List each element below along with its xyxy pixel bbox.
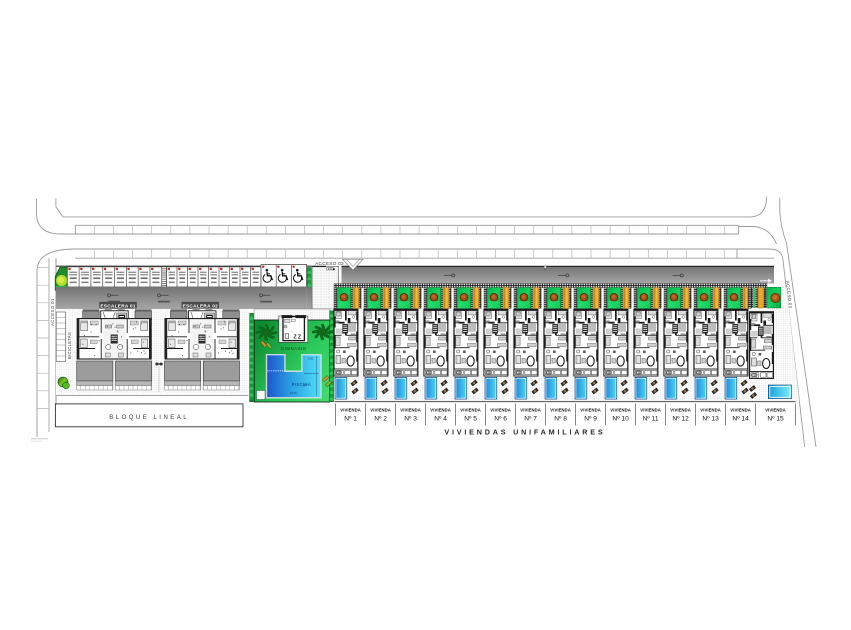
svg-text:VIVIENDA: VIVIENDA [580,408,601,413]
svg-text:BICICLETAS: BICICLETAS [67,332,72,359]
svg-text:Nº 7: Nº 7 [524,415,537,422]
svg-text:Nº 4: Nº 4 [434,415,447,422]
svg-text:GIMNASIO: GIMNASIO [281,346,307,351]
svg-text:Nº 12: Nº 12 [672,415,689,422]
svg-text:VIVIENDA: VIVIENDA [370,408,391,413]
svg-text:VIVIENDA: VIVIENDA [765,408,786,413]
svg-text:ACCESO 01: ACCESO 01 [50,298,55,326]
svg-text:Nº 6: Nº 6 [494,415,507,422]
svg-text:Nº 5: Nº 5 [464,415,477,422]
svg-text:BLOQUE LINEAL: BLOQUE LINEAL [109,415,189,421]
svg-text:VIVIENDAS UNIFAMILIARES: VIVIENDAS UNIFAMILIARES [444,428,605,437]
svg-text:Nº 15: Nº 15 [767,415,784,422]
svg-text:ESCALERA 01: ESCALERA 01 [100,303,136,308]
svg-text:VIVIENDA: VIVIENDA [430,408,451,413]
svg-text:Nº 10: Nº 10 [612,415,629,422]
svg-text:8: 8 [304,384,306,388]
svg-text:VIVIENDA: VIVIENDA [640,408,661,413]
svg-text:VIVIENDA: VIVIENDA [610,408,631,413]
svg-text:Nº 13: Nº 13 [702,415,719,422]
svg-text:Nº 11: Nº 11 [643,415,659,422]
svg-text:Z Z: Z Z [294,335,302,341]
svg-text:VIVIENDA: VIVIENDA [700,408,721,413]
svg-text:4.00: 4.00 [308,357,314,361]
svg-text:Nº 8: Nº 8 [554,415,567,422]
svg-text:ACCESO 02: ACCESO 02 [315,261,344,267]
svg-text:12.00: 12.00 [290,391,297,395]
svg-text:VIVIENDA: VIVIENDA [490,408,511,413]
svg-text:VIVIENDA: VIVIENDA [670,408,691,413]
svg-text:VIVIENDA: VIVIENDA [730,408,751,413]
svg-text:VIVIENDA: VIVIENDA [550,408,571,413]
svg-text:Nº 3: Nº 3 [404,415,417,422]
svg-text:VIVIENDA: VIVIENDA [400,408,421,413]
svg-text:VIVIENDA: VIVIENDA [520,408,541,413]
svg-text:Nº 14: Nº 14 [732,415,749,422]
svg-text:ESCALERA 02: ESCALERA 02 [183,303,219,308]
svg-text:Nº 9: Nº 9 [584,415,597,422]
svg-text:Nº 1: Nº 1 [344,415,357,422]
svg-text:PISCINA: PISCINA [292,382,311,387]
svg-text:Nº 2: Nº 2 [374,415,387,422]
svg-text:VIVIENDA: VIVIENDA [340,408,361,413]
svg-text:VIVIENDA: VIVIENDA [460,408,481,413]
